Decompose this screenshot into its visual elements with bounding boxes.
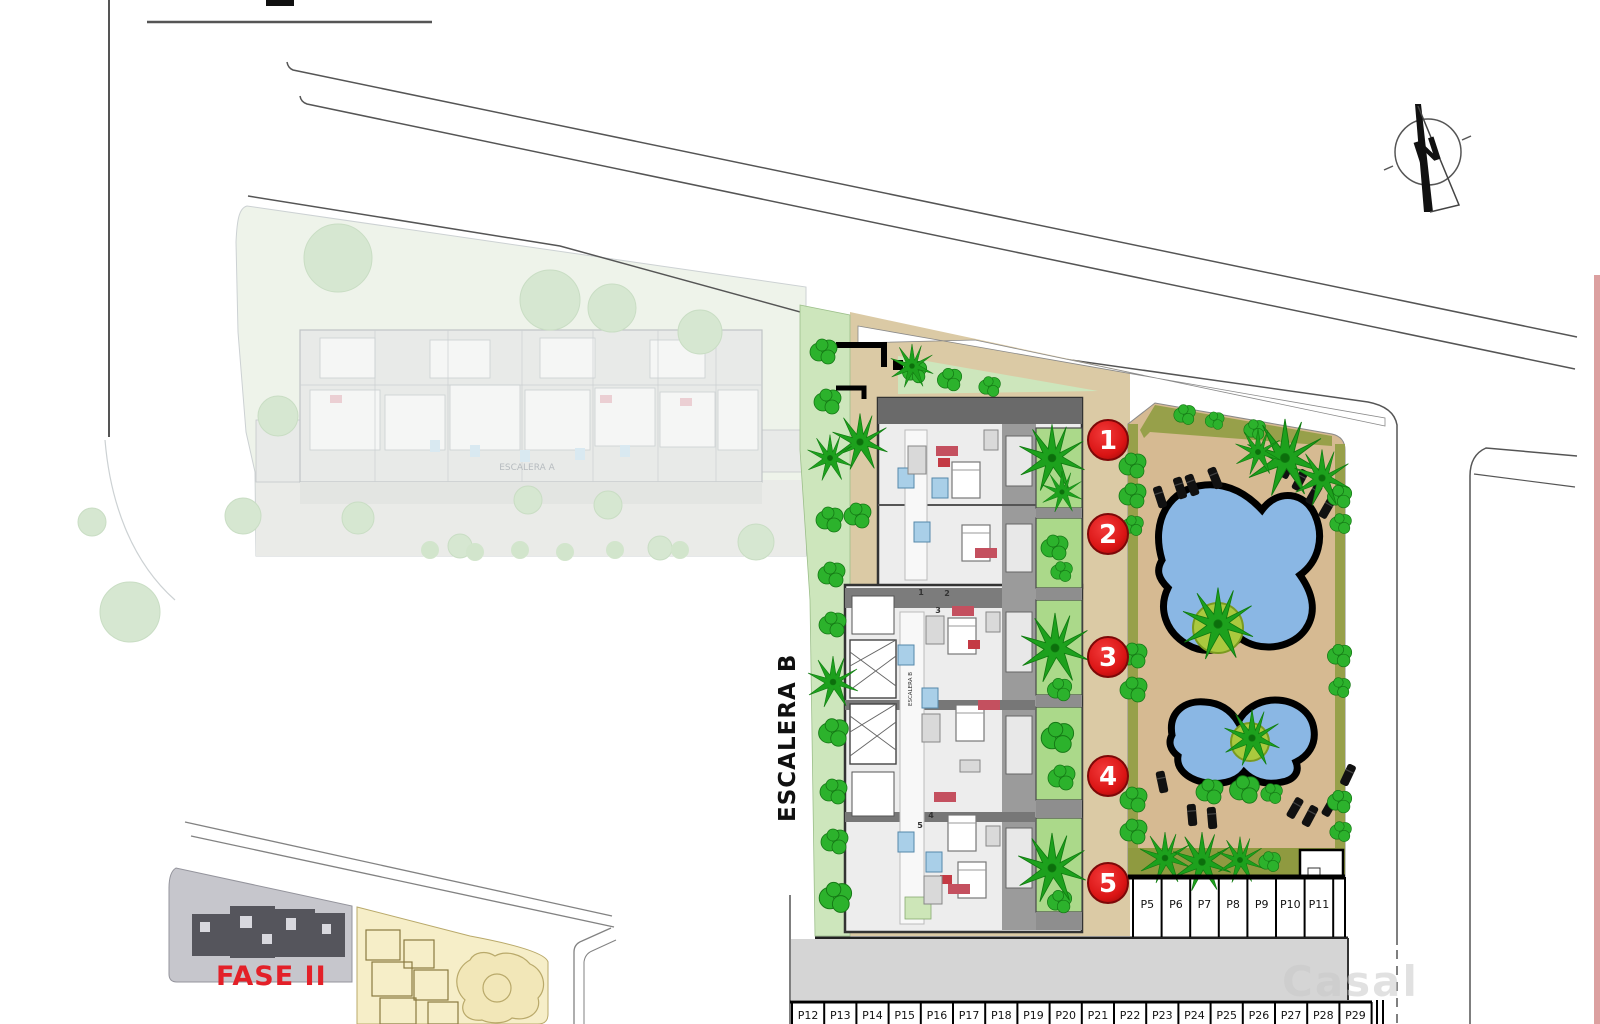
unit-badge-number: 1 — [1099, 426, 1117, 456]
north-compass: N — [1384, 104, 1471, 212]
unit-badge-number: 2 — [1099, 520, 1117, 550]
top-edge-fragment — [266, 0, 294, 6]
stairwell-b-label: ESCALERA B — [775, 654, 801, 822]
site-plan: ESCALERA A — [0, 0, 1600, 1024]
parking-upper: P5P6P7P8P9P10P11 — [1128, 877, 1345, 937]
unit-badge-number: 3 — [1099, 643, 1117, 673]
stairwell-b-small-label: ESCALERA B — [908, 672, 914, 706]
parking-stall-label: P11 — [1309, 898, 1330, 911]
parking-stall-label: P28 — [1313, 1009, 1334, 1022]
unit-door-number: 5 — [917, 821, 923, 830]
unit-door-number: 3 — [935, 606, 941, 615]
parking-stall-label: P8 — [1226, 898, 1240, 911]
site-plan-svg: ESCALERA A — [0, 0, 1600, 1024]
parking-stall-label: P21 — [1088, 1009, 1109, 1022]
parking-stall-label: P26 — [1249, 1009, 1270, 1022]
parking-stall-label: P18 — [991, 1009, 1012, 1022]
parking-stall-label: P10 — [1280, 898, 1301, 911]
unit-badge-number: 4 — [1099, 762, 1117, 792]
phase-label: FASE II — [216, 961, 327, 992]
parking-stall-label: P13 — [830, 1009, 851, 1022]
parking-stall-label: P19 — [1023, 1009, 1044, 1022]
parking-stall-label: P15 — [894, 1009, 915, 1022]
parking-stall-label: P14 — [862, 1009, 883, 1022]
inset-key-map: FASE II — [169, 868, 548, 1024]
unit-badge-number: 5 — [1099, 869, 1117, 899]
parking-stall-label: P9 — [1255, 898, 1269, 911]
parking-stall-label: P6 — [1169, 898, 1183, 911]
faded-phase-area: ESCALERA A — [78, 206, 806, 642]
parking-stall-label: P22 — [1120, 1009, 1141, 1022]
parking-stall-label: P16 — [927, 1009, 948, 1022]
stairwell-a-label: ESCALERA A — [499, 463, 555, 473]
right-edge-strip — [1594, 275, 1600, 1024]
parking-stall-label: P17 — [959, 1009, 980, 1022]
parking-stall-label: P7 — [1198, 898, 1212, 911]
watermark: Casal — [1282, 957, 1419, 1006]
parking-stall-label: P12 — [798, 1009, 819, 1022]
unit-door-number: 2 — [944, 589, 950, 598]
parking-stall-label: P24 — [1184, 1009, 1205, 1022]
parking-stall-label: P20 — [1055, 1009, 1076, 1022]
access-road — [791, 938, 1348, 1000]
parking-stall-label: P27 — [1281, 1009, 1302, 1022]
parking-stall-label: P5 — [1140, 898, 1154, 911]
parking-stall-label: P25 — [1216, 1009, 1237, 1022]
parking-stall-label: P29 — [1345, 1009, 1366, 1022]
unit-door-number: 4 — [928, 811, 934, 820]
parking-stall-label: P23 — [1152, 1009, 1173, 1022]
north-letter: N — [1409, 129, 1446, 173]
unit-door-number: 1 — [918, 588, 924, 597]
